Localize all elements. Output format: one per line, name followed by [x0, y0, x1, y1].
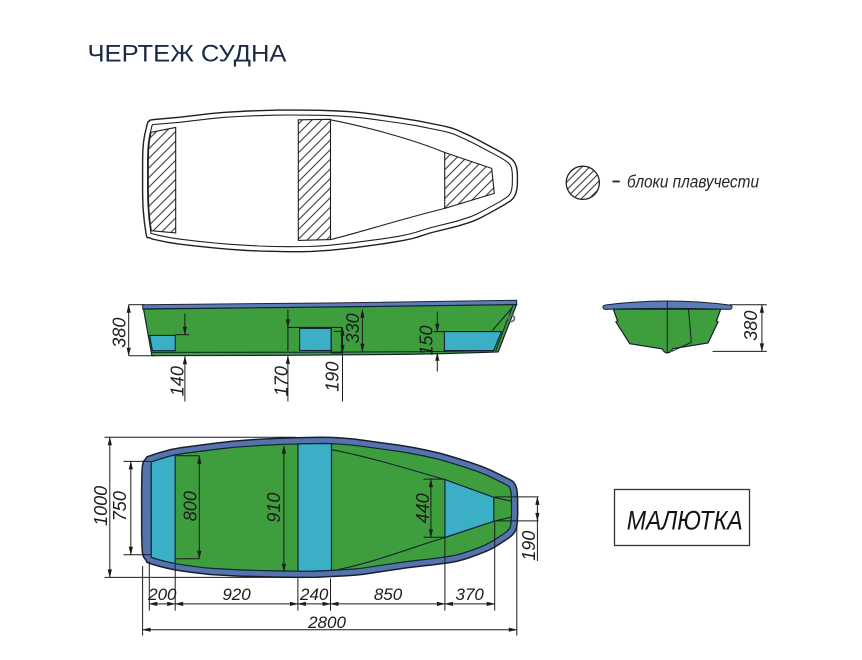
svg-text:190: 190	[519, 531, 539, 561]
svg-text:850: 850	[374, 585, 403, 604]
svg-text:750: 750	[110, 491, 130, 521]
svg-text:330: 330	[343, 313, 363, 343]
svg-text:блоки плавучести: блоки плавучести	[627, 171, 759, 191]
svg-text:800: 800	[181, 491, 201, 521]
svg-text:370: 370	[456, 585, 485, 604]
svg-text:920: 920	[222, 585, 251, 604]
svg-text:2800: 2800	[307, 613, 346, 632]
svg-text:ЧЕРТЕЖ СУДНА: ЧЕРТЕЖ СУДНА	[88, 41, 287, 68]
svg-text:380: 380	[109, 318, 129, 348]
svg-text:170: 170	[272, 366, 292, 396]
svg-text:150: 150	[417, 325, 437, 355]
svg-text:440: 440	[413, 493, 433, 523]
svg-text:200: 200	[147, 585, 177, 604]
svg-text:380: 380	[741, 311, 761, 341]
svg-text:190: 190	[323, 362, 343, 392]
svg-text:140: 140	[168, 366, 188, 396]
svg-text:240: 240	[299, 585, 329, 604]
svg-text:МАЛЮТКА: МАЛЮТКА	[627, 505, 743, 535]
svg-text:1000: 1000	[91, 486, 111, 526]
svg-text:910: 910	[264, 493, 284, 523]
